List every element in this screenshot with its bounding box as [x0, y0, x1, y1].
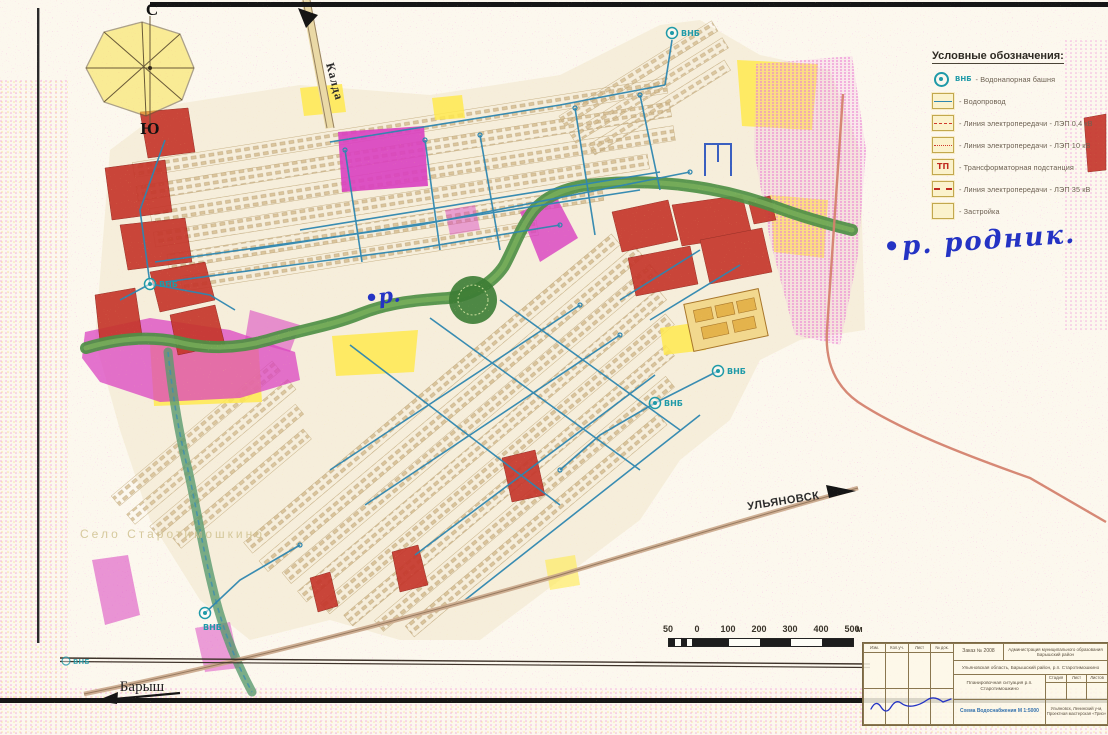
- scanned-map-page: С Ю ВНБ ВНБ ВНБ ВНБ ВНБ ВНБ Калда УЛЬЯНО…: [0, 0, 1108, 735]
- legend-title: Условные обозначения:: [932, 50, 1064, 64]
- water-tower-icon: [932, 71, 952, 87]
- legend-item-label: - Трансформаторная подстанция: [959, 163, 1074, 172]
- legend-item-lep10: - Линия электропередачи - ЛЭП 10 кВ: [932, 137, 1108, 153]
- stage-cell: [1066, 682, 1087, 700]
- stage-cell: [1086, 682, 1108, 700]
- legend-item-water-pipe: - Водопровод: [932, 93, 1108, 109]
- order-number: Заказ № 2008: [953, 643, 1004, 661]
- firm-name: Ульяновск, Ленинский у-м, Проектная маст…: [1045, 699, 1108, 725]
- organization: Администрация муниципального образования…: [1003, 643, 1108, 661]
- power-line-04-icon: [932, 115, 954, 131]
- tp-badge: ТП: [937, 162, 949, 171]
- legend-item-lep04: - Линия электропередачи - ЛЭП 0,4 кВ: [932, 115, 1108, 131]
- legend-item-label: - Линия электропередачи - ЛЭП 10 кВ: [959, 141, 1091, 150]
- scheme-title: Схема Водоснабжения М 1:5000: [953, 699, 1046, 725]
- scale-unit-label: м: [856, 624, 863, 634]
- legend-item-transformer: ТП - Трансформаторная подстанция: [932, 159, 1108, 175]
- power-line-35-icon: [932, 181, 954, 197]
- grid-cell: [930, 652, 954, 689]
- legend-item-label: - Застройка: [959, 207, 1000, 216]
- title-block: Изм. Кол.уч. Лист № док. Заказ № 2008 Ад…: [862, 642, 1108, 726]
- water-pipe-icon: [932, 93, 954, 109]
- legend-panel: Условные обозначения: ВНБ - Водонапорная…: [932, 44, 1108, 225]
- legend-item-lep35: - Линия электропередачи - ЛЭП 35 кВ: [932, 181, 1108, 197]
- legend-item-label: - Линия электропередачи - ЛЭП 35 кВ: [959, 185, 1091, 194]
- stage-cell: [1045, 682, 1067, 700]
- scale-tick-label: 300: [782, 624, 797, 634]
- grid-cell: [863, 652, 886, 689]
- scale-tick-label: 50: [663, 624, 673, 634]
- legend-item-water-tower: ВНБ - Водонапорная башня: [932, 71, 1108, 87]
- legend-item-label: - Водопровод: [959, 97, 1006, 106]
- subject-line: Планировочная ситуация р.п. Старотимошки…: [953, 674, 1046, 700]
- scale-tick-label: 200: [751, 624, 766, 634]
- legend-item-built-area: - Застройка: [932, 203, 1108, 219]
- built-area-icon: [932, 203, 954, 219]
- scale-bar: 50 0 100 200 300 400 500 м: [650, 624, 880, 654]
- scale-bar-graphic: [668, 638, 854, 647]
- vnb-badge: ВНБ: [955, 75, 972, 83]
- signature-scribble: [869, 695, 953, 717]
- scale-tick-label: 100: [720, 624, 735, 634]
- legend-item-label: - Водонапорная башня: [976, 75, 1056, 84]
- scale-tick-label: 400: [813, 624, 828, 634]
- legend-item-label: - Линия электропередачи - ЛЭП 0,4 кВ: [959, 119, 1093, 128]
- grid-cell: [885, 652, 909, 689]
- transformer-icon: ТП: [932, 159, 954, 175]
- scale-tick-label: 0: [694, 624, 699, 634]
- location-line: Ульяновская область, Барышский район, р.…: [953, 660, 1108, 675]
- grid-cell: [908, 652, 931, 689]
- power-line-10-icon: [932, 137, 954, 153]
